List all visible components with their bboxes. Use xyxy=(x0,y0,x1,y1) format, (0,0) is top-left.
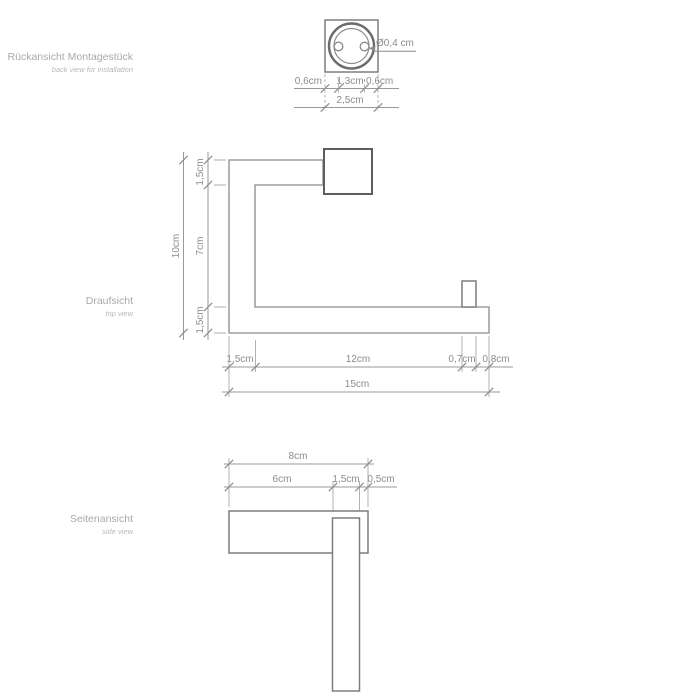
dim-label-height-top: 1,5cm xyxy=(196,158,206,185)
wall-mount-block xyxy=(324,149,372,194)
top-view-sublabel: top view xyxy=(105,310,133,318)
side-view-drawing xyxy=(229,511,368,691)
dim-label-depth-seg2: 1,5cm xyxy=(332,475,359,485)
dim-label-height-mid: 7cm xyxy=(196,237,206,256)
screw-hole-right xyxy=(360,42,369,51)
dim-label-length-seg4: 0,8cm xyxy=(482,355,509,365)
dim-label-depth-seg1: 6cm xyxy=(273,475,292,485)
back-view-label: Rückansicht Montagestück xyxy=(8,52,133,63)
mounting-plate-outline xyxy=(325,20,378,72)
roll-stop-stub xyxy=(462,281,476,307)
dim-label-height-total: 10cm xyxy=(172,234,182,258)
side-view-sublabel: side view xyxy=(102,528,133,536)
dim-label-length-seg1: 1,5cm xyxy=(226,355,253,365)
dim-label-hole-diameter: Ø0,4 cm xyxy=(376,39,414,49)
dim-label-length-seg3: 0,7cm xyxy=(448,355,475,365)
back-view-sublabel: back view for installation xyxy=(52,66,133,74)
dim-label-back-total: 2,5cm xyxy=(336,96,363,106)
dim-label-back-center: 1,3cm xyxy=(336,77,363,87)
dim-label-length-total: 15cm xyxy=(345,380,369,390)
side-view-dimensions xyxy=(224,458,397,514)
dim-label-back-left: 0,6cm xyxy=(295,77,322,87)
dim-label-length-seg2: 12cm xyxy=(346,355,370,365)
technical-drawing-page: Rückansicht Montagestück back view for i… xyxy=(0,0,700,700)
side-view-label: Seitenansicht xyxy=(70,514,133,525)
dim-label-depth-total: 8cm xyxy=(289,452,308,462)
dim-label-back-right: 0,6cm xyxy=(366,77,393,87)
dim-label-depth-seg3: 0,5cm xyxy=(367,475,394,485)
holder-arm-side xyxy=(333,518,360,691)
screw-hole-left xyxy=(334,42,343,51)
dim-label-height-bottom: 1,5cm xyxy=(196,306,206,333)
top-view-label: Draufsicht xyxy=(86,296,133,307)
top-view-drawing xyxy=(229,149,489,333)
